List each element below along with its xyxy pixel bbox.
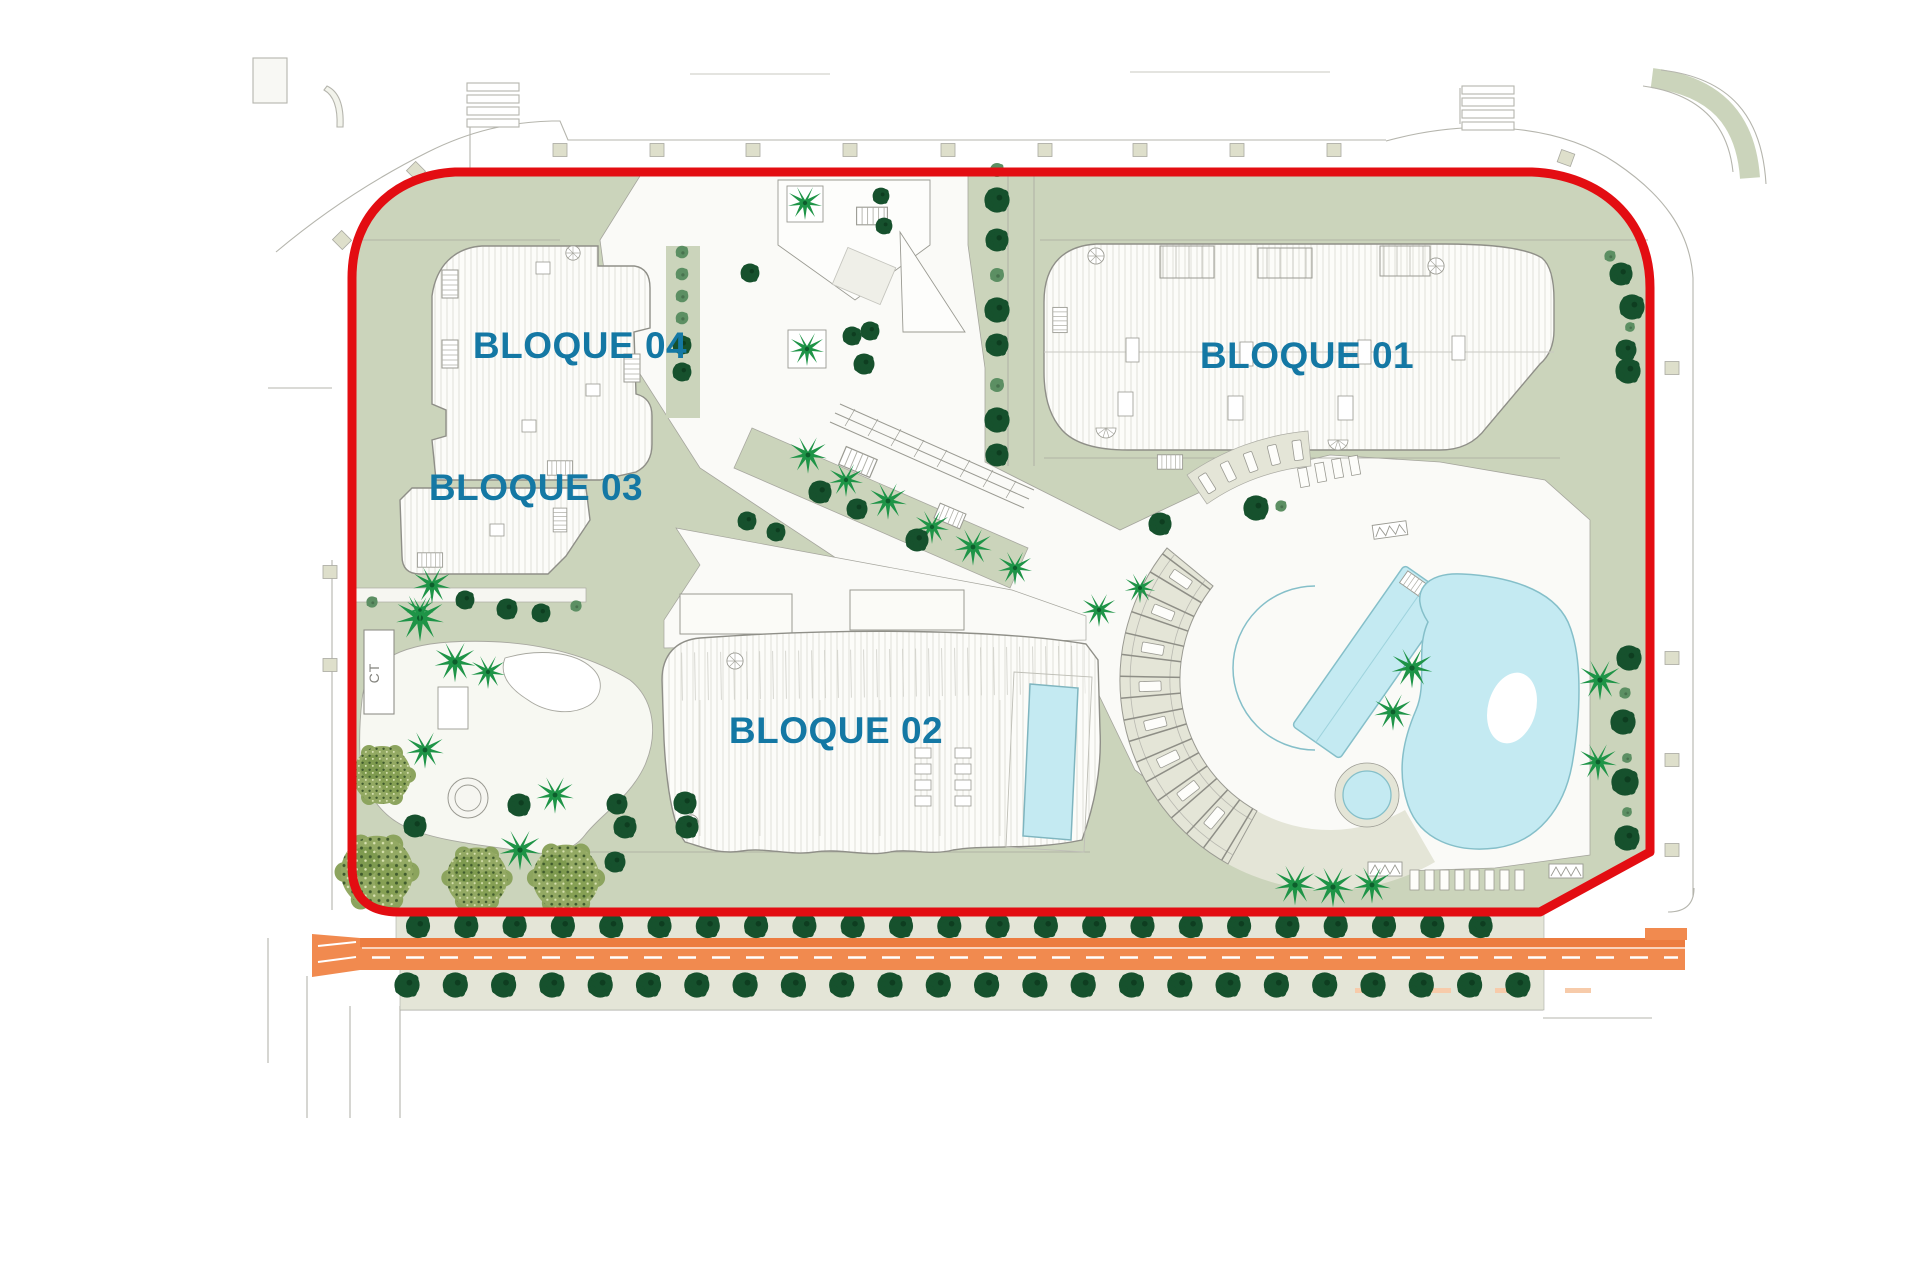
street-ticks [690, 72, 1330, 74]
pool-spa [1343, 771, 1391, 819]
street-corner-green [1652, 78, 1750, 178]
label-bloque-02: BLOQUE 02 [729, 710, 943, 751]
label-bloque-04: BLOQUE 04 [473, 325, 687, 366]
road-lane-upper [360, 938, 1685, 947]
label-bloque-01: BLOQUE 01 [1200, 335, 1414, 376]
fountain [448, 778, 488, 818]
garden-structure [438, 687, 468, 729]
label-bloque-03: BLOQUE 03 [429, 467, 643, 508]
trees-promenade [984, 163, 1009, 467]
street-structure [253, 58, 287, 103]
site-plan-canvas: BLOQUE 04 BLOQUE 03 BLOQUE 01 BLOQUE 02 … [0, 0, 1920, 1280]
street-wedge [324, 86, 343, 127]
road-flare [312, 934, 360, 977]
crosswalk-right [1462, 86, 1514, 130]
road-end-step [1645, 928, 1687, 940]
site-plan: BLOQUE 04 BLOQUE 03 BLOQUE 01 BLOQUE 02 … [0, 0, 1920, 1280]
rooftop-pool [1023, 684, 1078, 840]
trees-row-above-road [406, 914, 1493, 938]
crosswalk-left [467, 83, 519, 127]
label-ct: CT [366, 663, 382, 684]
